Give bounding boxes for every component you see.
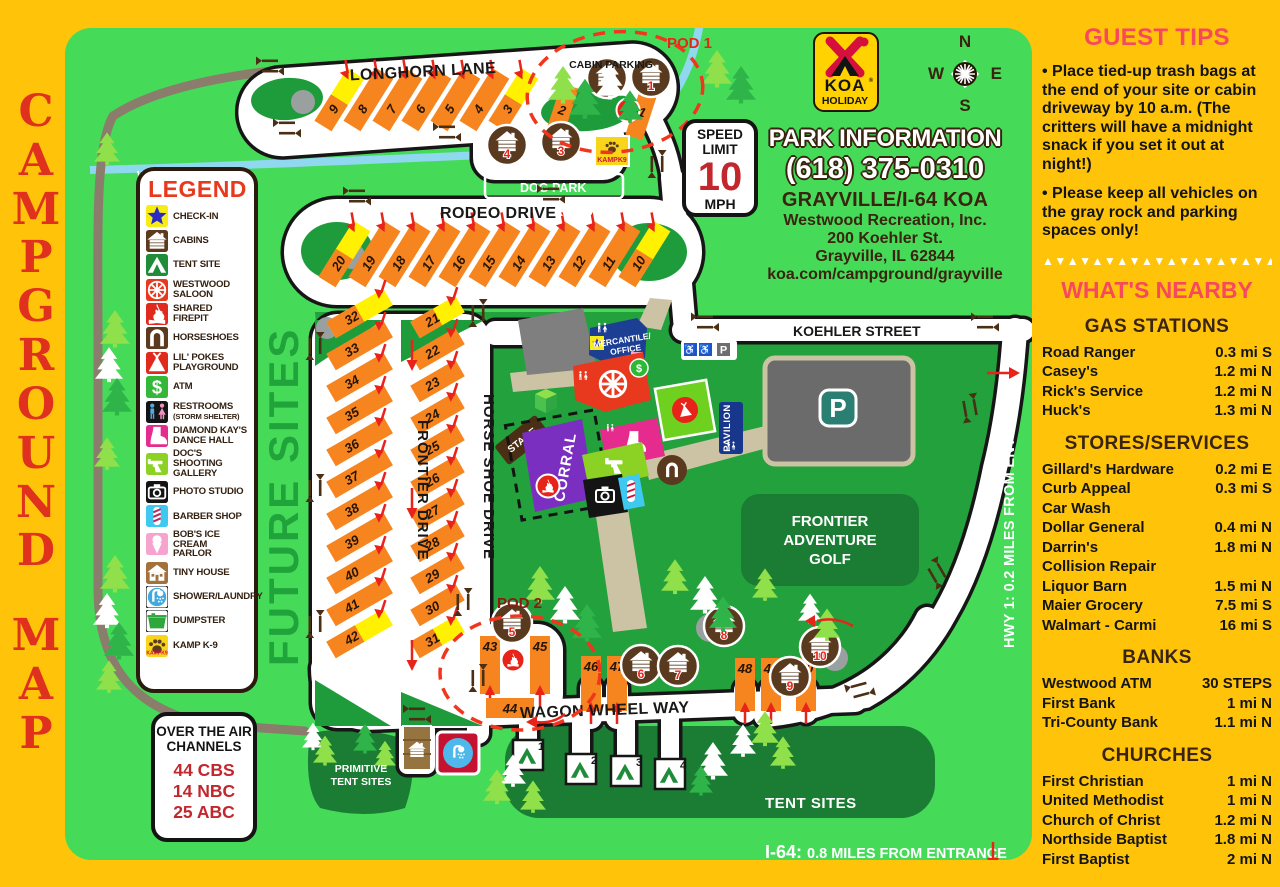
cabin-marker: 9	[770, 657, 810, 697]
svg-text:FRONTIER DRIVE: FRONTIER DRIVE	[414, 420, 431, 561]
svg-text:TENT SITES: TENT SITES	[765, 795, 857, 812]
title-letter: D	[17, 527, 55, 576]
ota-channel: 25 ABC	[155, 802, 253, 823]
title-letter: U	[17, 430, 55, 479]
nearby-distance: 1.8 mi N	[1214, 538, 1272, 558]
ota-title-1: OVER THE AIR	[156, 724, 252, 739]
svg-text:TENT SITES: TENT SITES	[331, 776, 392, 788]
nearby-distance: 1.8 mi N	[1214, 830, 1272, 850]
svg-text:POD 2: POD 2	[497, 595, 542, 612]
svg-text:3: 3	[636, 757, 642, 769]
tiny-house-icon	[403, 726, 431, 770]
svg-text:FRONTIER: FRONTIER	[792, 513, 869, 530]
nearby-section: CHURCHES First Christian 1 mi N United M…	[1042, 745, 1272, 870]
compass-w: W	[928, 64, 944, 84]
koa-logo: KOA ® HOLIDAY	[813, 32, 879, 112]
park-info-web: koa.com/campground/grayville	[733, 266, 1037, 284]
firepit-icon	[502, 649, 525, 672]
compass-e: E	[991, 64, 1002, 84]
nearby-row: Dollar General 0.4 mi N	[1042, 518, 1272, 538]
nearby-name: First Bank	[1042, 694, 1115, 714]
svg-text:3: 3	[558, 144, 565, 158]
nearby-distance: 1.5 mi N	[1214, 577, 1272, 597]
nearby-distance: 1 mi N	[1227, 772, 1272, 792]
svg-text:KOEHLER STREET: KOEHLER STREET	[793, 323, 921, 339]
legend-item: RESTROOMS(STORM SHELTER)	[146, 401, 249, 423]
legend-item: CABINS	[146, 230, 249, 252]
svg-text:10: 10	[813, 649, 827, 663]
title-letter: R	[18, 332, 55, 381]
legend-item-label: HORSESHOES	[173, 333, 239, 343]
legend-item-label: BOB'S ICE CREAMPARLOR	[173, 530, 249, 559]
nearby-row: Huck's 1.3 mi N	[1042, 401, 1272, 421]
svg-text:5: 5	[509, 625, 516, 639]
page-title: CAMPGROUNDMAP	[10, 88, 62, 759]
tent-site-marker: 4	[655, 759, 687, 789]
park-info-phone: (618) 375-0310	[733, 153, 1037, 186]
svg-text:45: 45	[532, 639, 548, 654]
title-letter: G	[17, 283, 55, 332]
legend-item-label: BARBER SHOP	[173, 512, 242, 522]
nearby-distance: 1 mi N	[1227, 791, 1272, 811]
nearby-name: Church of Christ	[1042, 811, 1160, 831]
tree-icon	[726, 66, 756, 104]
nearby-section: BANKS Westwood ATM 30 STEPS First Bank 1…	[1042, 647, 1272, 733]
nearby-name: Westwood ATM	[1042, 674, 1152, 694]
nearby-row: Liquor Barn 1.5 mi N	[1042, 577, 1272, 597]
compass-s: S	[959, 96, 970, 116]
svg-text:PRIMITIVE: PRIMITIVE	[335, 763, 388, 775]
nearby-name: Northside Baptist	[1042, 830, 1167, 850]
svg-text:GOLF: GOLF	[809, 551, 851, 568]
nearby-distance: 1.2 mi N	[1214, 811, 1272, 831]
nearby-row: Maier Grocery 7.5 mi S	[1042, 596, 1272, 616]
shower-laundry-icon	[437, 732, 479, 774]
nearby-name: Gillard's Hardware	[1042, 460, 1174, 480]
legend-item-label: LIL' POKESPLAYGROUND	[173, 353, 238, 373]
svg-text:4: 4	[504, 147, 511, 161]
whats-nearby-title: WHAT'S NEARBY	[1042, 277, 1272, 304]
nearby-section: STORES/SERVICES Gillard's Hardware 0.2 m…	[1042, 433, 1272, 636]
nearby-row: Road Ranger 0.3 mi S	[1042, 343, 1272, 363]
svg-text:ADVENTURE: ADVENTURE	[783, 532, 876, 549]
title-letter: A	[19, 137, 53, 186]
legend-title: LEGEND	[146, 176, 249, 203]
legend-item-label: ATM	[173, 382, 192, 392]
title-letter: N	[16, 479, 56, 528]
svg-text:P: P	[720, 345, 727, 357]
legend-item: SHARED FIREPIT	[146, 303, 249, 325]
wc-icon	[146, 401, 168, 423]
horseshoes-pit	[657, 455, 687, 485]
svg-text:P: P	[829, 393, 846, 423]
tree-icon	[702, 50, 732, 88]
svg-text:RODEO DRIVE: RODEO DRIVE	[440, 205, 556, 222]
campground-map-page: { "page_title": {"word1": "CAMPGROUND", …	[0, 0, 1280, 887]
legend-item: SHOWER/LAUNDRY	[146, 586, 249, 608]
nearby-name: Tri-County Bank	[1042, 713, 1158, 733]
title-letter: M	[12, 186, 61, 235]
cabin-marker: 6	[621, 645, 661, 685]
legend-item-label: SHARED FIREPIT	[173, 304, 249, 324]
cabin-marker: 4	[487, 125, 527, 165]
nearby-distance: 1.3 mi N	[1214, 401, 1272, 421]
nearby-row: Northside Baptist 1.8 mi N	[1042, 830, 1272, 850]
nearby-distance: 0.3 mi S	[1215, 479, 1272, 499]
dollar-icon	[146, 376, 168, 398]
info-sidebar: GUEST TIPS • Place tied-up trash bags at…	[1042, 24, 1272, 869]
svg-text:9: 9	[787, 679, 794, 693]
nearby-row: Darrin'sCollision Repair 1.8 mi N	[1042, 538, 1272, 577]
legend-item: TINY HOUSE	[146, 562, 249, 584]
legend-item: LIL' POKESPLAYGROUND	[146, 352, 249, 374]
firepit-icon	[537, 475, 560, 498]
nearby-name: Maier Grocery	[1042, 596, 1143, 616]
nearby-name: United Methodist	[1042, 791, 1164, 811]
nearby-section-title: STORES/SERVICES	[1042, 433, 1272, 455]
gun-icon	[146, 453, 168, 475]
nearby-section-title: GAS STATIONS	[1042, 316, 1272, 338]
svg-text:PAVILION: PAVILION	[722, 404, 733, 451]
whats-nearby-sections: GAS STATIONS Road Ranger 0.3 mi S Casey'…	[1042, 316, 1272, 870]
speed-unit: MPH	[686, 196, 754, 212]
tent-site-marker: 3	[611, 756, 642, 786]
nearby-distance: 1.1 mi N	[1214, 713, 1272, 733]
guest-tips-list: • Place tied-up trash bags at the end of…	[1042, 63, 1272, 241]
cabin-icon	[146, 230, 168, 252]
boot-icon	[146, 425, 168, 447]
ota-channel: 44 CBS	[155, 760, 253, 781]
nearby-row: United Methodist 1 mi N	[1042, 791, 1272, 811]
legend-item-label: CABINS	[173, 236, 209, 246]
nearby-distance: 1.2 mi N	[1214, 382, 1272, 402]
svg-text:®: ®	[869, 77, 874, 84]
nearby-name: Road Ranger	[1042, 343, 1135, 363]
legend-item-label: KAMP K-9	[173, 641, 218, 651]
nearby-distance: 0.2 mi E	[1215, 460, 1272, 480]
svg-text:4: 4	[680, 760, 687, 772]
nearby-distance: 1.2 mi N	[1214, 362, 1272, 382]
compass-rose: N W E S	[928, 32, 1002, 116]
nearby-row: Casey's 1.2 mi N	[1042, 362, 1272, 382]
svg-text:KAMPK9: KAMPK9	[146, 650, 167, 656]
nearby-distance: 0.3 mi S	[1215, 343, 1272, 363]
legend-item: HORSESHOES	[146, 327, 249, 349]
nearby-row: First Christian 1 mi N	[1042, 772, 1272, 792]
ota-title-2: CHANNELS	[166, 739, 241, 754]
legend-item: DOC'S SHOOTINGGALLERY	[146, 449, 249, 478]
zigzag-divider: ▲▼▲▼▲▼▲▼▲▼▲▼▲▼▲▼▲▼▲▼▲▼▲▼	[1042, 254, 1272, 268]
shower-icon	[146, 586, 168, 608]
svg-text:CABIN PARKING: CABIN PARKING	[569, 59, 653, 71]
park-info-org: Westwood Recreation, Inc.	[733, 212, 1037, 230]
nearby-distance: 0.4 mi N	[1214, 518, 1272, 538]
title-letter: M	[12, 612, 61, 661]
legend-item-label: DIAMOND KAY'SDANCE HALL	[173, 426, 247, 446]
svg-text:I-64: 0.8 MILES FROM ENTRANCE: I-64: 0.8 MILES FROM ENTRANCE	[765, 842, 1007, 860]
nearby-row: Walmart - Carmi 16 mi S	[1042, 616, 1272, 636]
tent-site-marker: 2	[566, 754, 597, 784]
star-icon	[146, 205, 168, 227]
legend-item-label: DOC'S SHOOTINGGALLERY	[173, 449, 249, 478]
nearby-name: Rick's Service	[1042, 382, 1143, 402]
legend-item: TENT SITE	[146, 254, 249, 276]
pavilion: PAVILION	[719, 402, 743, 454]
tree-icon	[94, 132, 120, 165]
nearby-row: Rick's Service 1.2 mi N	[1042, 382, 1272, 402]
compass-wheel-icon	[943, 52, 987, 96]
legend-item-label: WESTWOODSALOON	[173, 280, 230, 300]
park-info-street: 200 Koehler St.	[733, 230, 1037, 248]
legend-item-label: DUMPSTER	[173, 616, 225, 626]
svg-text:♿: ♿	[684, 343, 696, 356]
legend-item-label: RESTROOMS(STORM SHELTER)	[173, 402, 239, 422]
speed-word1: SPEED	[697, 127, 743, 142]
legend-item-label: CHECK-IN	[173, 212, 218, 222]
nearby-section-title: CHURCHES	[1042, 745, 1272, 767]
nearby-name: Curb AppealCar Wash	[1042, 479, 1131, 518]
playground	[655, 380, 715, 440]
fire-icon	[146, 303, 168, 325]
nearby-name: Casey's	[1042, 362, 1098, 382]
svg-text:48: 48	[737, 661, 753, 676]
title-letter: A	[19, 661, 53, 710]
nearby-distance: 1 mi N	[1227, 694, 1272, 714]
legend-item-label: SHOWER/LAUNDRY	[173, 592, 263, 602]
nearby-row: Curb AppealCar Wash 0.3 mi S	[1042, 479, 1272, 518]
svg-text:POD 1: POD 1	[667, 35, 712, 52]
nearby-row: Tri-County Bank 1.1 mi N	[1042, 713, 1272, 733]
teepee-icon	[146, 352, 168, 374]
legend-item: KAMPK9 KAMP K-9	[146, 635, 249, 657]
over-the-air-box: OVER THE AIR CHANNELS 44 CBS14 NBC25 ABC	[151, 712, 257, 842]
tree-icon	[100, 310, 130, 348]
title-letter: P	[19, 710, 52, 759]
cube	[535, 389, 557, 413]
paw-icon: KAMPK9	[146, 635, 168, 657]
legend-items: CHECK-IN CABINS TENT SITE WESTWOODSALOON…	[146, 205, 249, 656]
ota-channel: 14 NBC	[155, 781, 253, 802]
ota-channels: 44 CBS14 NBC25 ABC	[155, 760, 253, 824]
nearby-row: First Bank 1 mi N	[1042, 694, 1272, 714]
nearby-name: Dollar General	[1042, 518, 1145, 538]
nearby-distance: 16 mi S	[1219, 616, 1272, 636]
legend-item-label: TINY HOUSE	[173, 568, 229, 578]
legend-item-label: TENT SITE	[173, 260, 220, 270]
svg-text:2: 2	[591, 755, 597, 767]
guest-tip: • Place tied-up trash bags at the end of…	[1042, 63, 1272, 174]
speed-limit-sign: SPEED LIMIT 10 MPH	[682, 119, 758, 217]
svg-text:FUTURE SITES: FUTURE SITES	[260, 327, 307, 666]
nearby-name: Liquor Barn	[1042, 577, 1127, 597]
legend-item-label: PHOTO STUDIO	[173, 487, 243, 497]
svg-text:43: 43	[482, 639, 498, 654]
nearby-row: Church of Christ 1.2 mi N	[1042, 811, 1272, 831]
nearby-row: Westwood ATM 30 STEPS	[1042, 674, 1272, 694]
guest-tip: • Please keep all vehicles on the gray r…	[1042, 185, 1272, 241]
tree-icon	[102, 378, 132, 416]
legend-item: ATM	[146, 376, 249, 398]
tent-icon	[146, 254, 168, 276]
nearby-section: GAS STATIONS Road Ranger 0.3 mi S Casey'…	[1042, 316, 1272, 421]
nearby-name: First Christian	[1042, 772, 1144, 792]
park-info-title: PARK INFORMATION	[733, 125, 1037, 153]
title-letter: C	[18, 88, 53, 137]
svg-text:KAMPK9: KAMPK9	[597, 157, 627, 164]
svg-text:7: 7	[675, 668, 682, 682]
legend-item: CHECK-IN	[146, 205, 249, 227]
title-letter: P	[19, 234, 52, 283]
svg-text:HOLIDAY: HOLIDAY	[822, 95, 868, 107]
svg-text:6: 6	[638, 667, 645, 681]
compass-n: N	[959, 32, 971, 52]
dump-icon	[146, 610, 168, 632]
handicap-parking: ♿♿P	[681, 340, 737, 360]
speed-value: 10	[686, 158, 754, 196]
nearby-name: First Baptist	[1042, 850, 1130, 870]
legend-panel: LEGEND CHECK-IN CABINS TENT SITE WESTWOO…	[136, 167, 258, 693]
park-info-campground: GRAYVILLE/I-64 KOA	[733, 189, 1037, 212]
nearby-name: Huck's	[1042, 401, 1091, 421]
nearby-distance: 7.5 mi S	[1215, 596, 1272, 616]
legend-item: WESTWOODSALOON	[146, 279, 249, 301]
camera-icon	[146, 481, 168, 503]
nearby-name: Walmart - Carmi	[1042, 616, 1156, 636]
nearby-distance: 30 STEPS	[1202, 674, 1272, 694]
wheel-icon	[146, 279, 168, 301]
cabin-marker: 7	[658, 646, 698, 686]
house-icon	[146, 562, 168, 584]
svg-text:HORSE SHOE DRIVE: HORSE SHOE DRIVE	[480, 394, 497, 560]
legend-item: BARBER SHOP	[146, 505, 249, 527]
nearby-name: Darrin'sCollision Repair	[1042, 538, 1156, 577]
horseshoe-icon	[146, 327, 168, 349]
nearby-row: Gillard's Hardware 0.2 mi E	[1042, 460, 1272, 480]
main-parking-lot: P	[765, 358, 913, 464]
legend-item: BOB'S ICE CREAMPARLOR	[146, 530, 249, 559]
nearby-row: First Baptist 2 mi N	[1042, 850, 1272, 870]
svg-text:1: 1	[538, 741, 544, 753]
svg-text:KOA: KOA	[825, 76, 866, 95]
park-info-city: Grayville, IL 62844	[733, 248, 1037, 266]
svg-text:♿: ♿	[699, 343, 711, 356]
tree-icon	[100, 555, 130, 593]
guest-tips-title: GUEST TIPS	[1042, 24, 1272, 52]
svg-text:44: 44	[502, 701, 518, 716]
legend-item: DUMPSTER	[146, 610, 249, 632]
adventure-golf-area: FRONTIERADVENTUREGOLF	[741, 494, 919, 586]
svg-text:1: 1	[648, 79, 655, 93]
title-letter: O	[17, 381, 55, 430]
nearby-distance: 2 mi N	[1227, 850, 1272, 870]
nearby-section-title: BANKS	[1042, 647, 1272, 669]
park-information: PARK INFORMATION (618) 375-0310 GRAYVILL…	[733, 125, 1037, 284]
legend-item: PHOTO STUDIO	[146, 481, 249, 503]
svg-text:HWY 1: 0.2 MILES FROM ENTRANCE: HWY 1: 0.2 MILES FROM ENTRANCE	[1002, 385, 1018, 648]
pole-icon	[146, 505, 168, 527]
tent-site-marker: 1	[513, 740, 544, 770]
koa-logo-icon: KOA ® HOLIDAY	[813, 32, 879, 112]
legend-item: DIAMOND KAY'SDANCE HALL	[146, 425, 249, 447]
cone-icon	[146, 533, 168, 555]
